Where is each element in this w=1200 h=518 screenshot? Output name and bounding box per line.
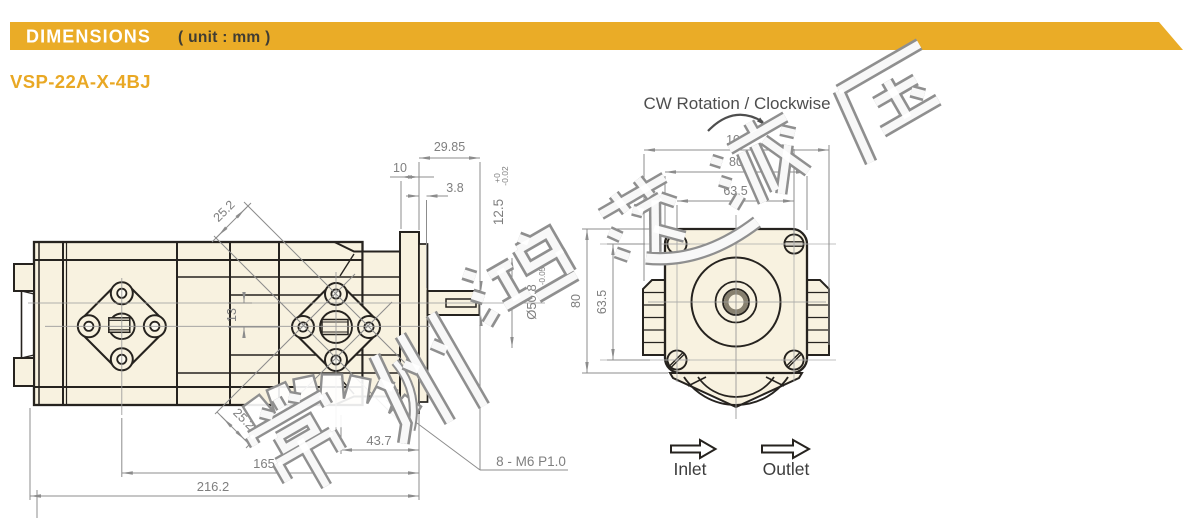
svg-text:CW Rotation / Clockwise: CW Rotation / Clockwise: [643, 94, 830, 113]
svg-text:+0: +0: [492, 173, 502, 183]
svg-text:165: 165: [253, 456, 275, 471]
svg-text:3.8: 3.8: [446, 181, 463, 195]
svg-text:80: 80: [569, 294, 583, 308]
svg-text:29.85: 29.85: [434, 140, 465, 154]
svg-text:216.2: 216.2: [197, 479, 230, 494]
svg-text:Outlet: Outlet: [763, 459, 810, 479]
svg-text:12.5: 12.5: [491, 199, 506, 225]
svg-text:10: 10: [393, 161, 407, 175]
svg-text:13: 13: [225, 308, 239, 322]
svg-text:43.7: 43.7: [366, 433, 391, 448]
svg-text:VSP-22A-X-4BJ: VSP-22A-X-4BJ: [10, 71, 151, 92]
svg-text:( unit : mm ): ( unit : mm ): [178, 29, 271, 46]
svg-text:DIMENSIONS: DIMENSIONS: [26, 27, 151, 47]
svg-text:63.5: 63.5: [595, 290, 609, 314]
svg-text:8 - M6 P1.0: 8 - M6 P1.0: [496, 454, 566, 469]
svg-text:Inlet: Inlet: [673, 459, 706, 479]
